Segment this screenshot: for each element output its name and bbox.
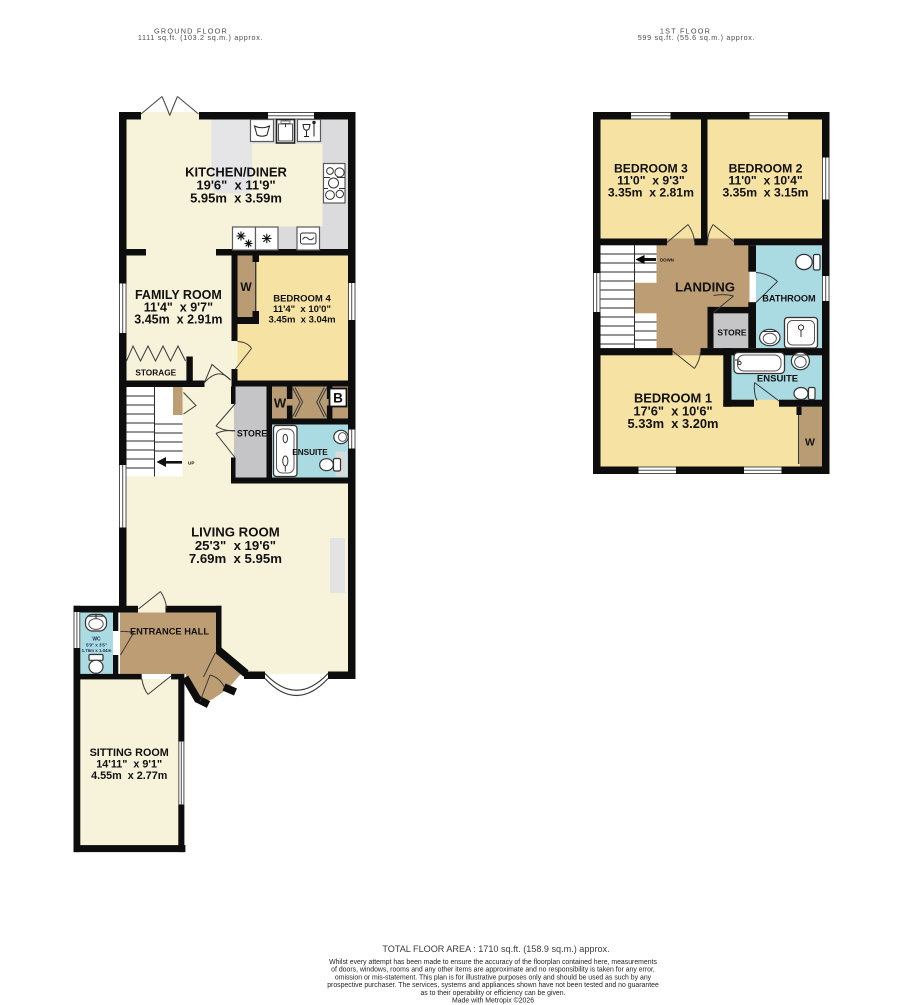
svg-text:Made with Metropix ©2026: Made with Metropix ©2026 (452, 997, 534, 1005)
svg-text:Whilst every attempt has been: Whilst every attempt has been made to en… (329, 959, 657, 966)
svg-text:3.45m x 2.91m: 3.45m x 2.91m (134, 313, 222, 327)
svg-text:1111 sq.ft. (103.2 sq.m.) appr: 1111 sq.ft. (103.2 sq.m.) approx. (138, 33, 263, 42)
svg-text:LANDING: LANDING (675, 280, 735, 295)
svg-text:4.55m x 2.77m: 4.55m x 2.77m (91, 770, 167, 782)
svg-text:TOTAL FLOOR AREA : 1710 sq.ft.: TOTAL FLOOR AREA : 1710 sq.ft. (158.9 sq… (382, 944, 609, 954)
svg-text:BATHROOM: BATHROOM (762, 294, 816, 304)
svg-text:DOWN: DOWN (660, 258, 674, 263)
svg-text:7.69m x 5.95m: 7.69m x 5.95m (189, 551, 282, 566)
svg-text:599 sq.ft. (55.6 sq.m.) approx: 599 sq.ft. (55.6 sq.m.) approx. (638, 33, 756, 42)
svg-text:as to their operability or eff: as to their operability or efficiency ca… (420, 990, 565, 997)
svg-text:UP: UP (188, 460, 194, 465)
svg-text:of doors, windows, rooms and a: of doors, windows, rooms and any other i… (331, 967, 655, 974)
svg-text:ENSUITE: ENSUITE (757, 374, 798, 385)
svg-text:SITTING ROOM: SITTING ROOM (90, 747, 169, 759)
svg-text:3.35m x 3.15m: 3.35m x 3.15m (722, 186, 808, 200)
svg-text:1.76m x 1.04m: 1.76m x 1.04m (82, 648, 112, 653)
svg-text:5.33m x 3.20m: 5.33m x 3.20m (627, 416, 718, 431)
svg-text:5'9" x 3'5": 5'9" x 3'5" (86, 642, 107, 647)
svg-text:B: B (333, 391, 343, 406)
svg-text:STORAGE: STORAGE (135, 368, 176, 378)
svg-text:W: W (805, 437, 815, 449)
svg-text:3.35m x 2.81m: 3.35m x 2.81m (608, 186, 694, 200)
svg-text:STORE: STORE (717, 328, 746, 338)
svg-text:ENSUITE: ENSUITE (292, 448, 328, 457)
svg-text:prospective purchaser. The ser: prospective purchaser. The services, sys… (327, 982, 659, 989)
svg-text:STORE: STORE (237, 429, 267, 439)
svg-text:3.45m x 3.04m: 3.45m x 3.04m (268, 314, 335, 325)
svg-text:14'11" x 9'1": 14'11" x 9'1" (96, 759, 162, 771)
svg-text:omission or mis-statement. Thi: omission or mis-statement. This plan is … (335, 974, 652, 981)
svg-text:5.95m x 3.59m: 5.95m x 3.59m (190, 191, 282, 206)
svg-text:ENTRANCE HALL: ENTRANCE HALL (130, 627, 209, 637)
svg-text:W: W (240, 280, 252, 294)
svg-text:W: W (274, 396, 287, 411)
